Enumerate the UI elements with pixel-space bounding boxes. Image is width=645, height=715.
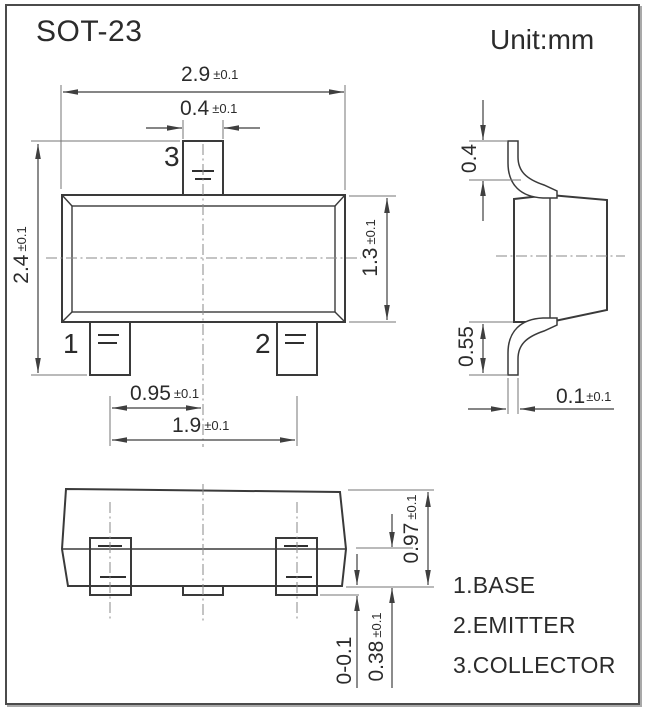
dim-tolerance: ±0.1 (204, 418, 229, 433)
dim-tolerance: ±0.1 (369, 612, 384, 637)
dim-lead-bottom-height: 0.55 (455, 285, 479, 405)
dim-value: 0.97 (400, 523, 423, 564)
legend-item-collector: 3.COLLECTOR (453, 652, 616, 679)
dim-value: 0.4 (180, 97, 209, 120)
side-bottom-lead (508, 318, 557, 375)
side-body-outline (514, 195, 607, 322)
dim-body-height: 1.3±0.1 (359, 188, 383, 308)
bottom-view (62, 484, 346, 622)
dim-value: 0.95 (130, 382, 171, 405)
pin3-label: 3 (164, 141, 180, 173)
body-bevel-top-right (335, 195, 345, 206)
dim-value: 0.55 (455, 326, 478, 367)
dim-value: 0.1 (556, 385, 585, 408)
dim-value: 2.4 (10, 255, 33, 284)
dim-value: 1.9 (172, 414, 201, 437)
front-view-dimensions (31, 85, 396, 446)
pin2-lead (277, 322, 317, 375)
dim-overall-height: 2.4±0.1 (10, 195, 34, 315)
dim-tolerance: ±0.1 (404, 494, 419, 519)
dim-pad-protrusion: 0-0.1 (333, 599, 357, 715)
dim-lead-span: 1.9±0.1 (172, 414, 229, 438)
pin2-label: 2 (255, 328, 271, 360)
dim-lead-pitch: 0.95±0.1 (130, 382, 199, 406)
pin1-lead (90, 322, 130, 375)
body-bevel-bottom-right (335, 312, 345, 322)
legend-item-emitter: 2.EMITTER (453, 612, 576, 639)
dim-tolerance: ±0.1 (213, 67, 238, 82)
dim-lead-top-height: 0.4 (458, 97, 482, 217)
page-title: SOT-23 (36, 15, 142, 49)
front-view (46, 141, 361, 447)
pin1-label: 1 (63, 328, 79, 360)
unit-label: Unit:mm (490, 24, 594, 56)
dim-value: 2.9 (181, 63, 210, 86)
dim-tolerance: ±0.1 (586, 389, 611, 404)
dim-lead-width: 0.4±0.1 (180, 97, 237, 121)
dim-tolerance: ±0.1 (363, 219, 378, 244)
side-view-dimensions (468, 100, 614, 414)
legend-item-base: 1.BASE (453, 572, 535, 599)
dim-tolerance: ±0.1 (174, 386, 199, 401)
dim-body-width: 2.9±0.1 (181, 63, 238, 87)
side-view (496, 141, 625, 375)
dim-value: 1.3 (359, 248, 382, 277)
dim-lead-thickness: 0.1±0.1 (556, 385, 611, 409)
side-top-lead (508, 141, 557, 198)
body-bevel-top-left (62, 195, 72, 206)
dim-value: 0.4 (458, 144, 481, 173)
dim-tolerance: ±0.1 (14, 226, 29, 251)
dim-pad-width: 0.38±0.1 (365, 587, 389, 707)
body-bevel-bottom-left (62, 312, 72, 322)
dim-value: 0-0.1 (333, 637, 356, 685)
drawing-layer (0, 0, 645, 715)
dim-value: 0.38 (365, 641, 388, 682)
dim-tolerance: ±0.1 (212, 101, 237, 116)
dim-pad-height: 0.97±0.1 (400, 469, 424, 589)
drawing-page: SOT-23 Unit:mm 2.9±0.1 0.4±0.1 2.4±0.1 1… (0, 0, 645, 715)
